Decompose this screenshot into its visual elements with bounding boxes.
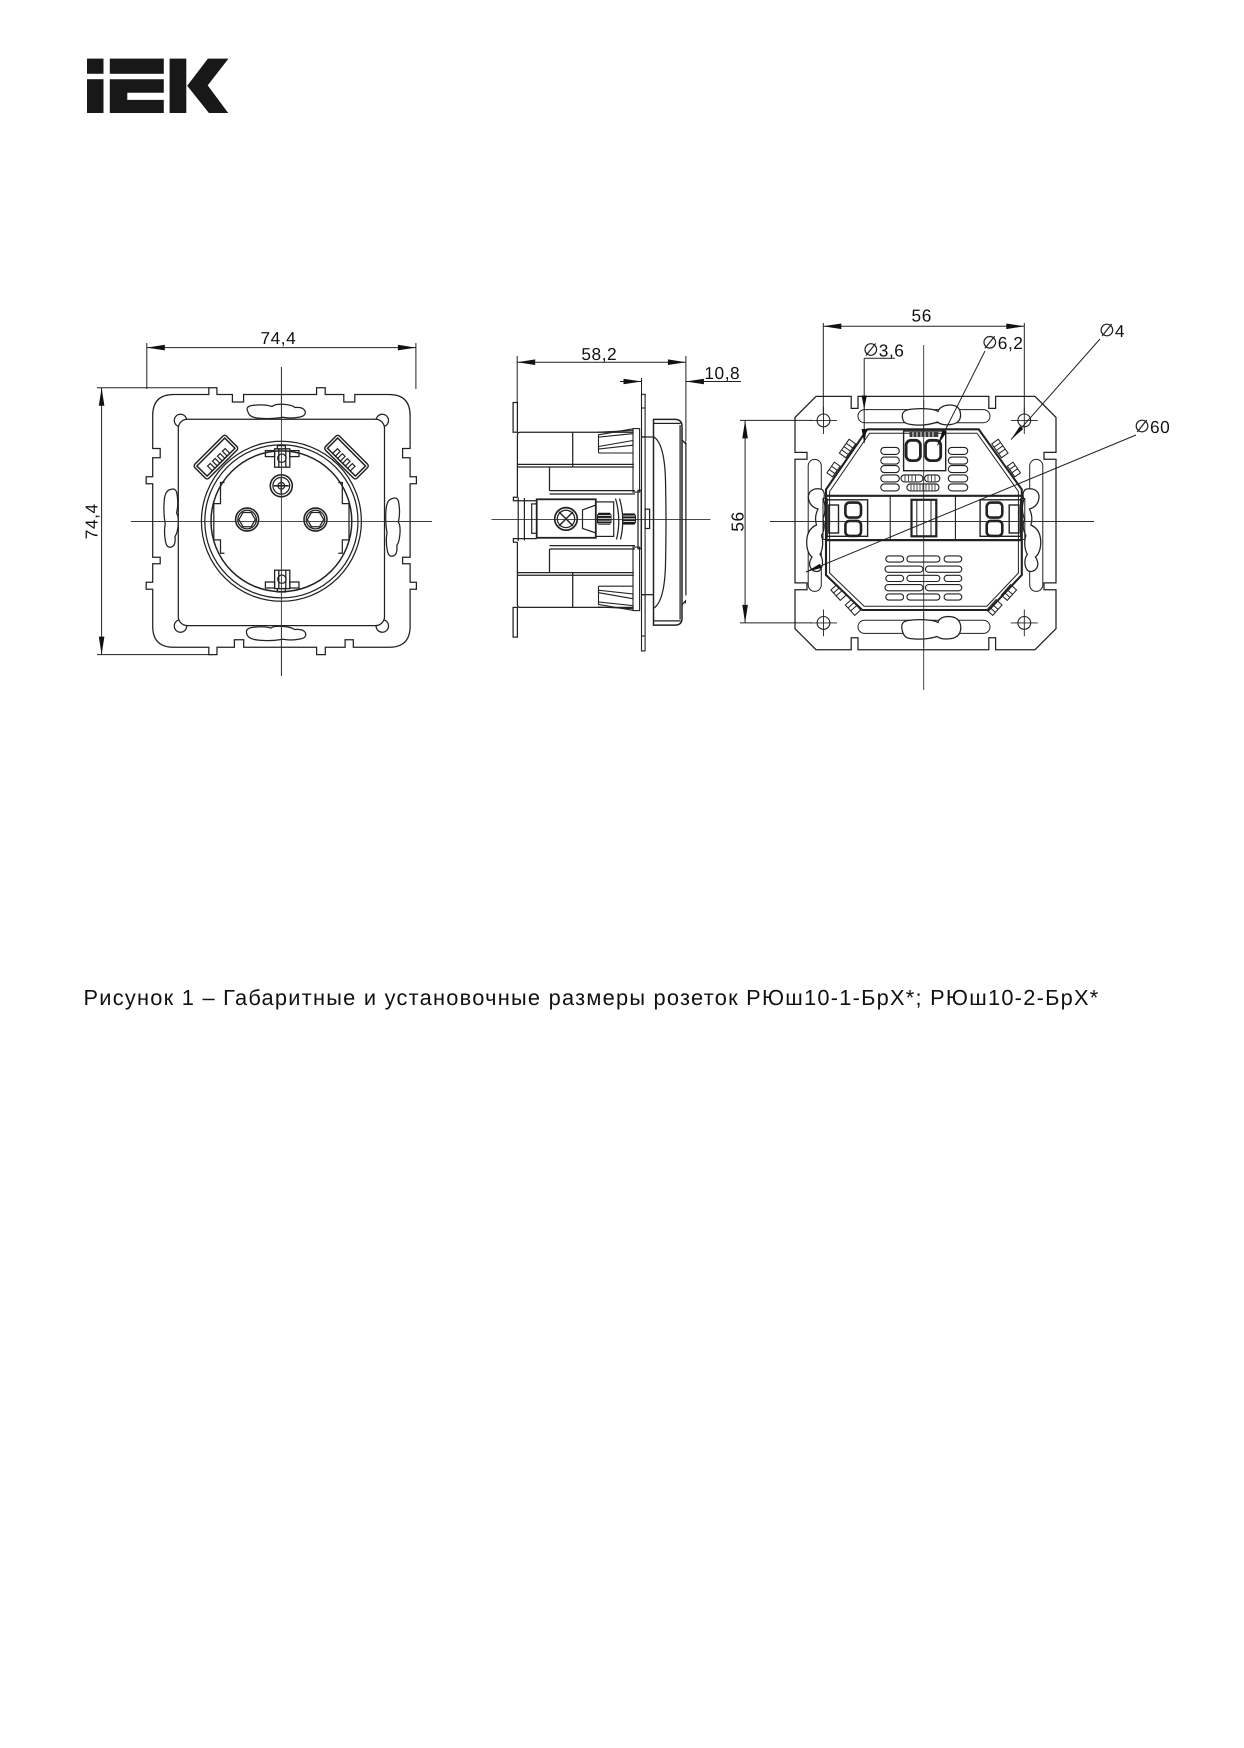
svg-text:58,2: 58,2 [581,344,617,364]
svg-text:3,6: 3,6 [879,340,905,360]
svg-text:6,2: 6,2 [998,333,1024,353]
svg-text:74,4: 74,4 [260,328,296,348]
svg-text:10,8: 10,8 [704,363,740,383]
svg-text:4: 4 [1115,321,1125,341]
svg-text:56: 56 [728,511,748,531]
svg-text:Рисунок 1 – Габаритные и устан: Рисунок 1 – Габаритные и установочные ра… [84,985,1100,1010]
svg-text:56: 56 [912,306,932,326]
svg-text:60: 60 [1150,417,1170,437]
svg-text:74,4: 74,4 [82,503,102,539]
